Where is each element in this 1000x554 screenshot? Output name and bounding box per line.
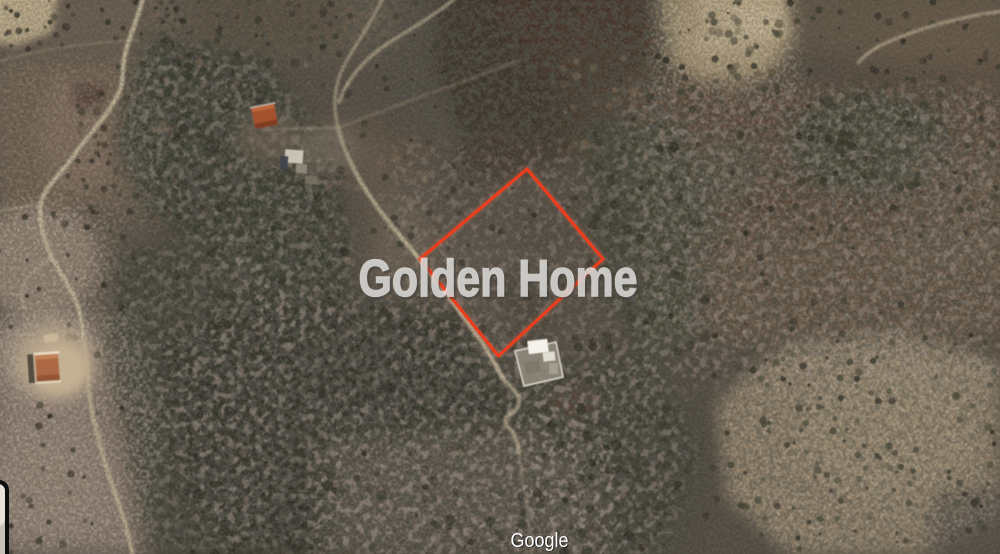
svg-text:Google: Google [511,529,569,552]
svg-text:Golden Home: Golden Home [359,250,638,308]
